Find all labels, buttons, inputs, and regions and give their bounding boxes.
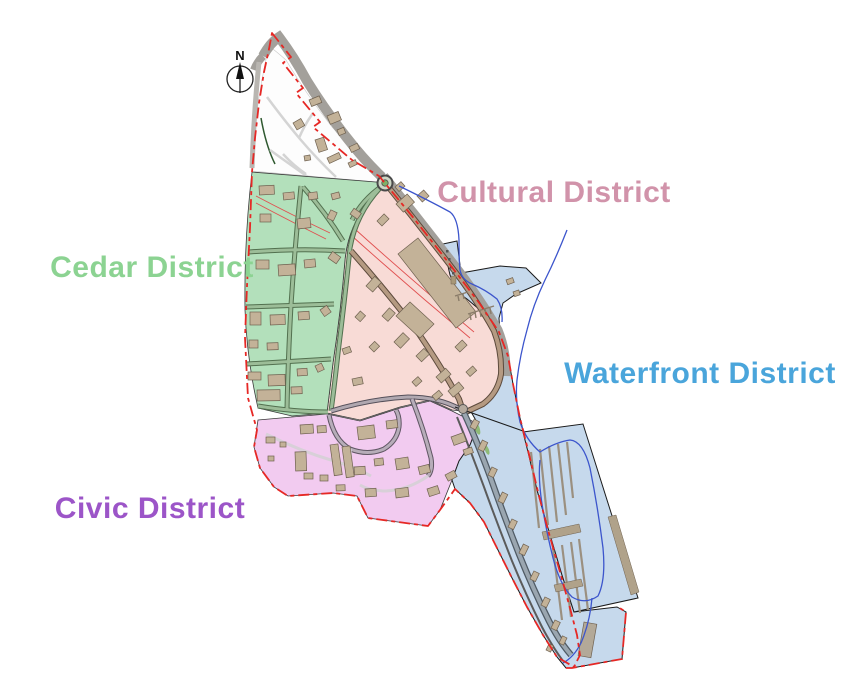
- cedar-district-label: Cedar District: [50, 251, 254, 284]
- compass-n-label: N: [235, 48, 244, 63]
- map-canvas: N Cedar District Cultural District Water…: [0, 0, 860, 689]
- civic-district-area: [254, 401, 478, 526]
- district-map: N Cedar District Cultural District Water…: [0, 0, 860, 689]
- compass: N: [227, 48, 253, 93]
- civic-district-label: Civic District: [55, 492, 245, 525]
- waterfront-district-label: Waterfront District: [564, 357, 836, 390]
- peninsula-area: [252, 37, 388, 183]
- cultural-district-label: Cultural District: [437, 176, 671, 209]
